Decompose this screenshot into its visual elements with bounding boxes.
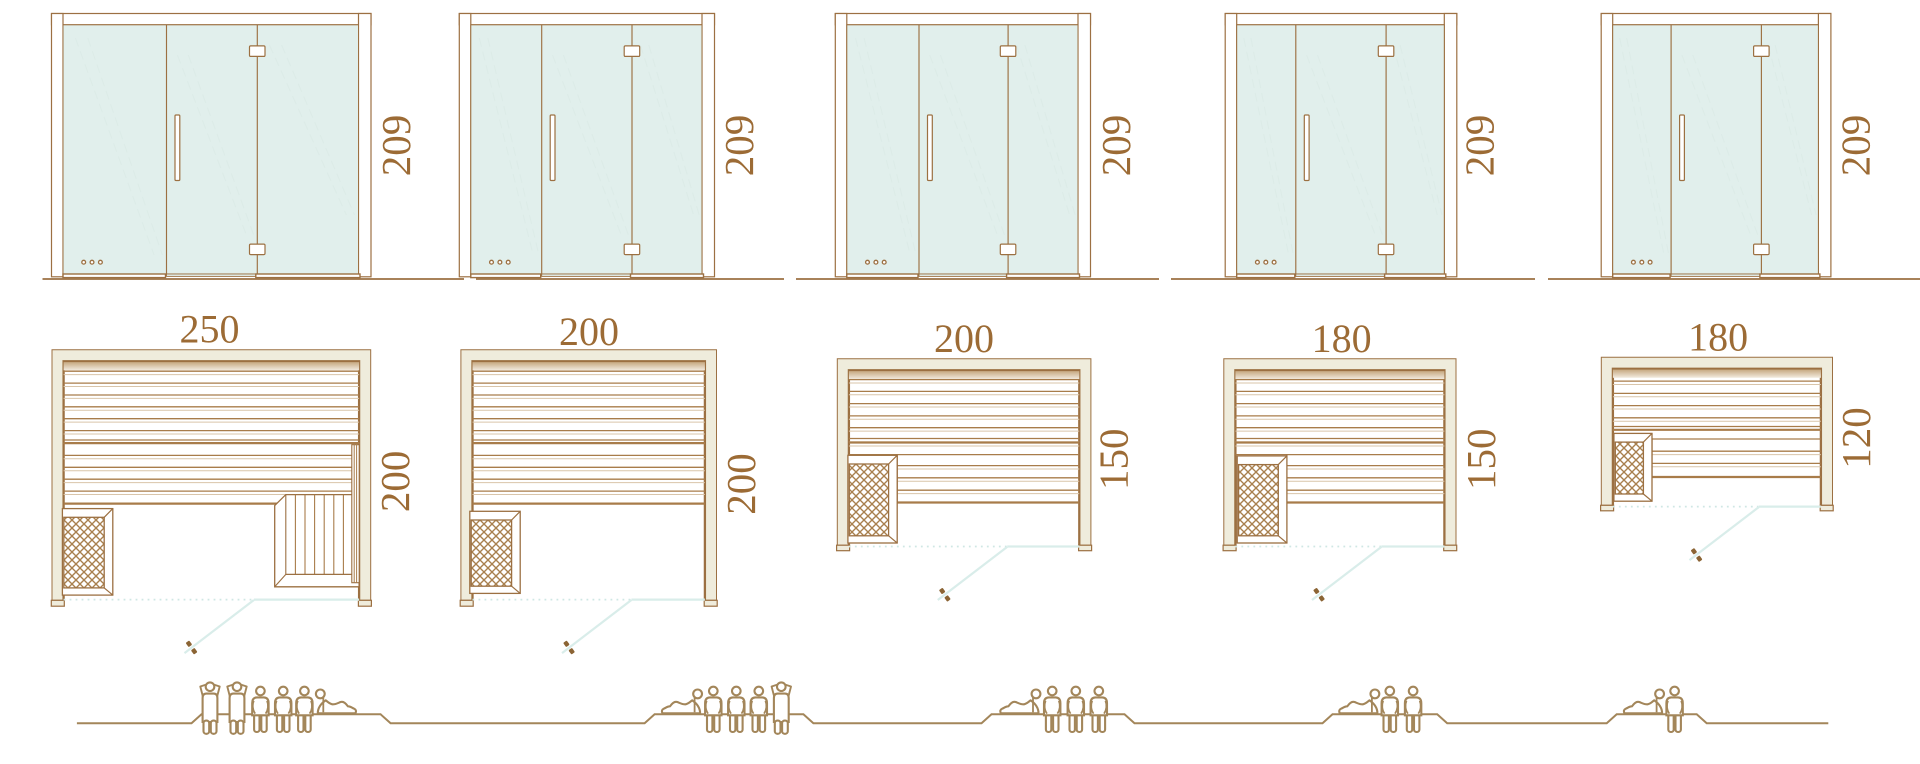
svg-text:200: 200 xyxy=(559,309,619,354)
svg-text:120: 120 xyxy=(1833,407,1879,469)
svg-text:200: 200 xyxy=(718,453,764,515)
svg-text:150: 150 xyxy=(1090,428,1136,490)
svg-text:200: 200 xyxy=(934,316,994,361)
svg-text:150: 150 xyxy=(1458,428,1504,490)
svg-text:200: 200 xyxy=(372,451,418,513)
svg-text:209: 209 xyxy=(1093,115,1139,177)
svg-text:209: 209 xyxy=(373,115,419,177)
svg-text:180: 180 xyxy=(1312,316,1372,361)
svg-text:209: 209 xyxy=(1833,115,1879,177)
svg-text:250: 250 xyxy=(180,307,240,352)
svg-text:209: 209 xyxy=(1457,115,1503,177)
svg-text:180: 180 xyxy=(1688,315,1748,360)
svg-text:209: 209 xyxy=(716,115,762,177)
